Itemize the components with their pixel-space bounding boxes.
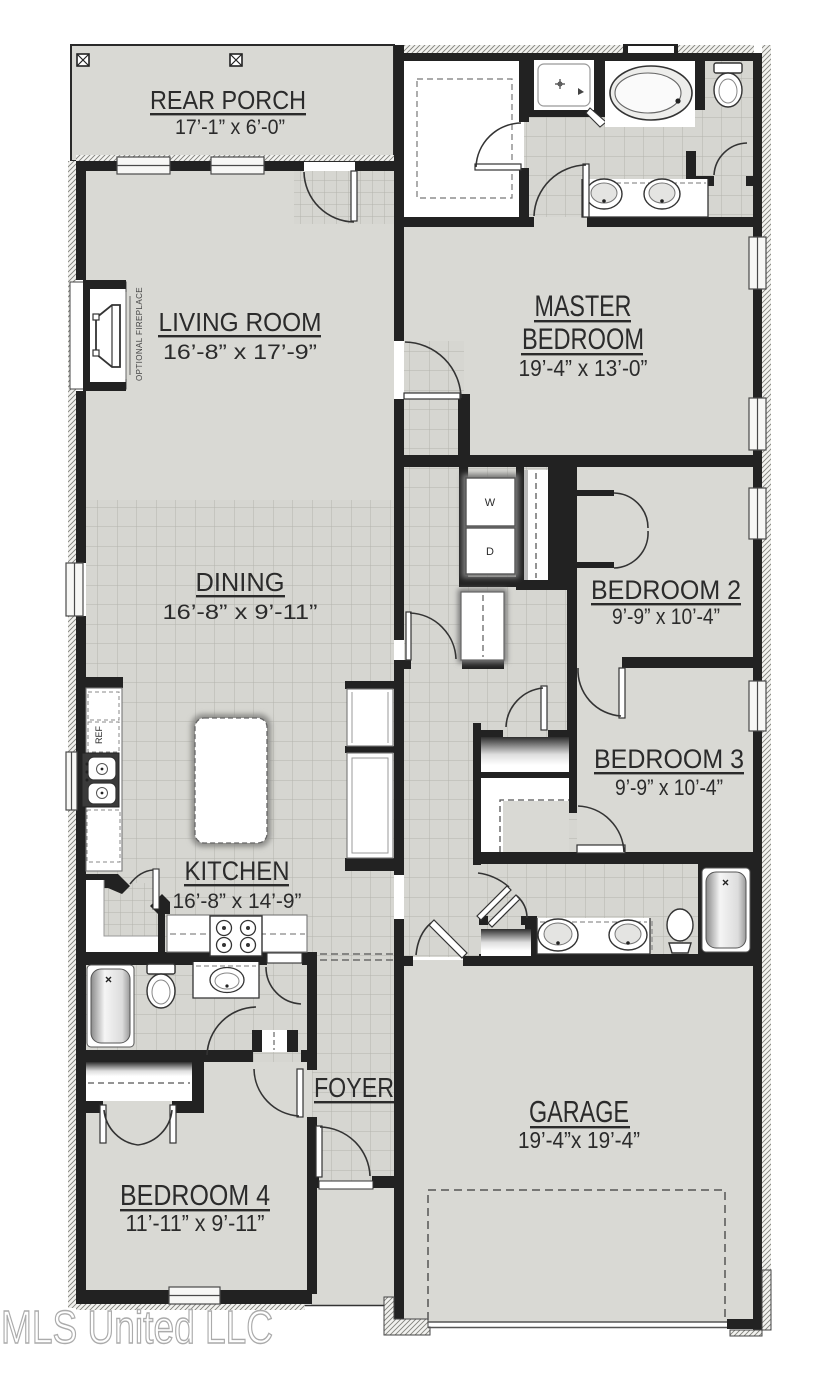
svg-text:MLS United LLC: MLS United LLC [1,1301,273,1353]
svg-text:19’-4” x 13’-0”: 19’-4” x 13’-0” [519,355,648,381]
svg-text:DINING: DINING [196,567,285,597]
svg-text:9’-9” x 10’-4”: 9’-9” x 10’-4” [615,775,723,800]
svg-text:FOYER: FOYER [314,1072,394,1103]
svg-text:W: W [485,497,496,509]
svg-text:19’-4”x 19’-4”: 19’-4”x 19’-4” [518,1127,640,1153]
svg-text:GARAGE: GARAGE [529,1094,629,1129]
svg-text:LIVING ROOM: LIVING ROOM [159,307,322,337]
svg-text:11’-11” x 9’-11”: 11’-11” x 9’-11” [126,1210,265,1236]
svg-text:16’-8” x 17’-9”: 16’-8” x 17’-9” [163,341,317,364]
svg-text:BEDROOM 2: BEDROOM 2 [591,575,741,605]
svg-text:REF: REF [94,725,104,744]
svg-text:BEDROOM: BEDROOM [522,323,644,356]
svg-text:16’-8” x 14’-9”: 16’-8” x 14’-9” [173,890,302,913]
svg-text:KITCHEN: KITCHEN [185,856,290,886]
svg-text:17’-1” x 6’-0”: 17’-1” x 6’-0” [175,116,285,139]
svg-text:9’-9” x 10’-4”: 9’-9” x 10’-4” [612,604,720,629]
svg-text:D: D [486,546,494,558]
svg-text:BEDROOM 3: BEDROOM 3 [594,744,744,774]
svg-text:BEDROOM 4: BEDROOM 4 [120,1180,270,1212]
svg-text:OPTIONAL FIREPLACE: OPTIONAL FIREPLACE [135,287,144,381]
svg-text:REAR PORCH: REAR PORCH [150,85,306,115]
svg-text:MASTER: MASTER [535,290,632,323]
svg-text:16’-8” x 9’-11”: 16’-8” x 9’-11” [163,601,318,624]
